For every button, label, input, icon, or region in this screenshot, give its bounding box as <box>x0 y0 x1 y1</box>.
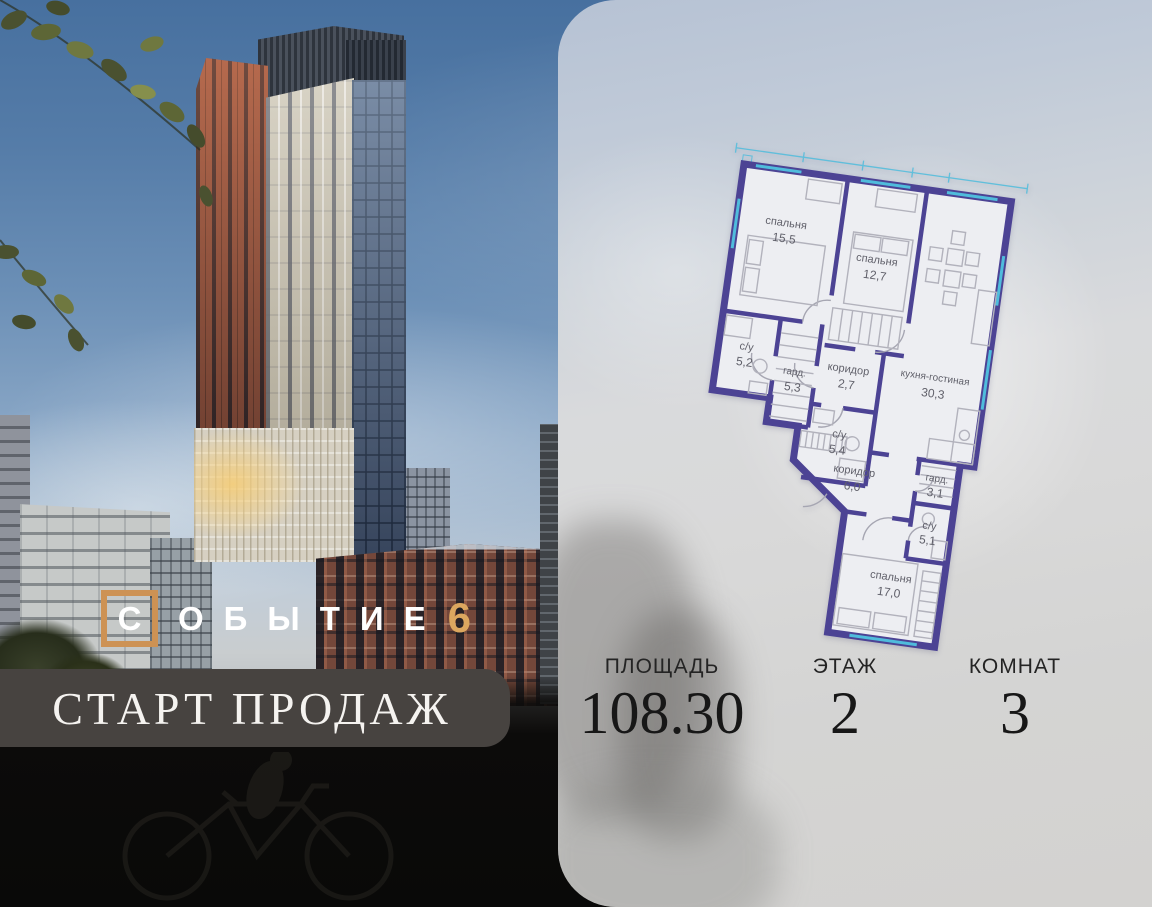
tower-sunlit-base <box>194 428 354 562</box>
stat-area: ПЛОЩАДЬ 108.30 <box>572 655 752 745</box>
stat-floor: ЭТАЖ 2 <box>755 655 935 745</box>
sales-start-banner: СТАРТ ПРОДАЖ <box>0 669 510 747</box>
stat-area-label: ПЛОЩАДЬ <box>572 655 752 679</box>
card-blur-smudge <box>558 780 778 907</box>
room-label: с/у <box>922 519 938 533</box>
cyclist-silhouette <box>105 752 415 904</box>
room-label: с/у <box>739 340 755 354</box>
logo-number: 6 <box>448 597 471 639</box>
leaves <box>0 0 215 354</box>
floor-plan: спальня 15,5 спальня 12,7 кухня-гостиная… <box>704 142 1044 667</box>
room-label: с/у <box>831 428 847 442</box>
room-area: 5,1 <box>918 532 937 548</box>
logo-orange-square: С <box>101 590 158 647</box>
room-area: 3,1 <box>926 485 945 501</box>
sales-start-text: СТАРТ ПРОДАЖ <box>32 682 452 735</box>
stat-rooms-label: КОМНАТ <box>925 655 1105 679</box>
stat-area-value: 108.30 <box>572 682 752 745</box>
room-area: 5,4 <box>828 442 847 458</box>
tower-beige-face <box>266 78 354 472</box>
stat-rooms-value: 3 <box>925 682 1105 745</box>
room-area: 5,2 <box>735 354 754 370</box>
tower-thin-distant <box>540 424 560 704</box>
logo-first-letter: С <box>118 602 142 635</box>
logo-rest-letters: ОБЫТИЕ <box>178 602 446 635</box>
foliage-top-left <box>0 0 250 370</box>
stat-floor-label: ЭТАЖ <box>755 655 935 679</box>
room-area: 2,7 <box>837 376 856 392</box>
stat-rooms: КОМНАТ 3 <box>925 655 1105 745</box>
tower-glass-face <box>352 80 406 558</box>
room-area: 6,0 <box>843 478 862 494</box>
apartment-info-card: спальня 15,5 спальня 12,7 кухня-гостиная… <box>558 0 1152 907</box>
logo-sobytie: С ОБЫТИЕ 6 <box>101 588 471 648</box>
room-area: 5,3 <box>783 379 802 395</box>
promo-screenshot: С ОБЫТИЕ 6 СТАРТ ПРОДАЖ <box>0 0 1152 907</box>
stat-floor-value: 2 <box>755 682 935 745</box>
